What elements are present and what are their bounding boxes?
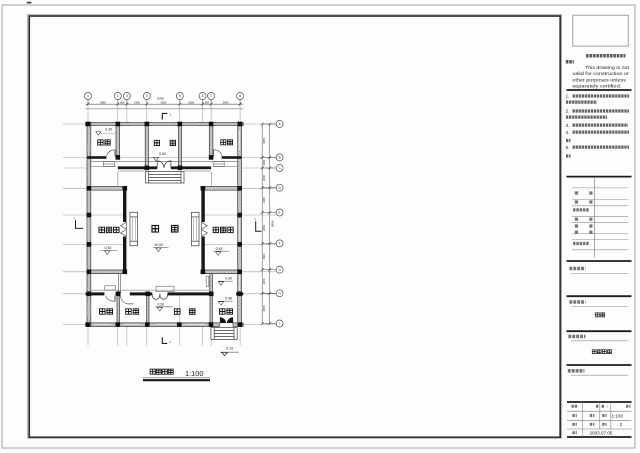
svg-text:other purposes unless: other purposes unless <box>572 78 626 83</box>
svg-text:±0.00: ±0.00 <box>154 243 163 247</box>
svg-text:3.: 3. <box>566 123 570 129</box>
svg-text:4.: 4. <box>566 130 570 136</box>
svg-text:0.30: 0.30 <box>157 302 164 306</box>
svg-text:0.60: 0.60 <box>159 152 166 156</box>
svg-text:2280: 2280 <box>188 100 194 104</box>
svg-text:2.: 2. <box>566 109 570 115</box>
svg-text:5.: 5. <box>566 145 570 151</box>
svg-text:2980: 2980 <box>100 100 106 104</box>
svg-text:2: 2 <box>620 422 623 427</box>
svg-text:19900: 19900 <box>270 220 274 228</box>
svg-text:0.30: 0.30 <box>105 128 112 132</box>
svg-text:2950: 2950 <box>262 225 266 231</box>
svg-text:This drawing is not: This drawing is not <box>585 65 630 70</box>
svg-text:valid for construction or: valid for construction or <box>573 71 630 76</box>
svg-text:8: 8 <box>239 94 241 98</box>
svg-text:2900: 2900 <box>223 100 229 104</box>
svg-text:7: 7 <box>210 94 212 98</box>
svg-text:I: I <box>279 322 280 326</box>
svg-text:6: 6 <box>202 94 204 98</box>
svg-text:F: F <box>279 242 281 246</box>
svg-text:5: 5 <box>179 94 181 98</box>
svg-text:1990: 1990 <box>134 100 140 104</box>
svg-text:-0.15: -0.15 <box>225 347 233 351</box>
svg-text:3300: 3300 <box>160 100 166 104</box>
svg-text:1:100: 1:100 <box>185 369 204 378</box>
svg-text:B: B <box>279 156 281 160</box>
svg-text:4: 4 <box>146 94 148 98</box>
svg-text:1:100: 1:100 <box>612 414 624 419</box>
svg-text:850: 850 <box>205 100 210 104</box>
svg-text:3: 3 <box>126 94 128 98</box>
svg-text:15300: 15300 <box>157 96 165 100</box>
svg-text:900: 900 <box>120 100 125 104</box>
svg-text:2600: 2600 <box>262 253 266 259</box>
svg-text:2003.07.05: 2003.07.05 <box>590 431 613 436</box>
svg-text:2450: 2450 <box>262 197 266 203</box>
svg-text:1050: 1050 <box>262 159 266 165</box>
svg-text:2000: 2000 <box>262 174 266 180</box>
svg-text:0.45: 0.45 <box>105 246 112 250</box>
svg-text:E: E <box>279 211 281 215</box>
svg-text:1: 1 <box>87 94 89 98</box>
svg-text:separately certified.: separately certified. <box>572 84 621 89</box>
svg-text:2350: 2350 <box>262 278 266 284</box>
svg-text:3050: 3050 <box>262 305 266 311</box>
svg-text:2: 2 <box>117 94 119 98</box>
svg-text:1.: 1. <box>566 94 570 100</box>
svg-text:0.45: 0.45 <box>225 297 232 301</box>
svg-text:0.45: 0.45 <box>216 247 223 251</box>
svg-text:3350: 3350 <box>262 137 266 143</box>
svg-text:0.30: 0.30 <box>225 277 232 281</box>
